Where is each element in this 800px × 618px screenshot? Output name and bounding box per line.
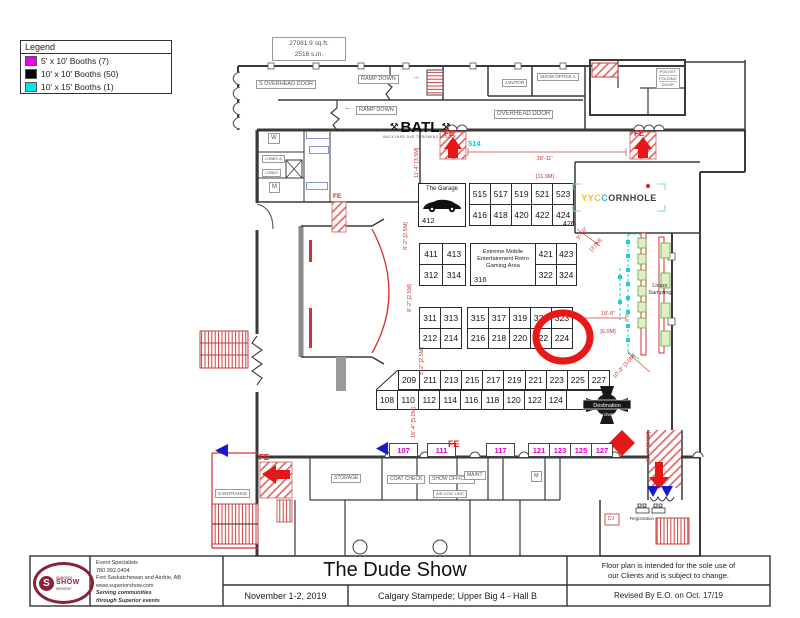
booth-423: 423 bbox=[556, 243, 578, 265]
air-con-label: AIR CON. UNIT bbox=[433, 490, 467, 498]
booth-122: 122 bbox=[524, 390, 546, 410]
legend-item-label: 5' x 10' Booths (7) bbox=[41, 56, 109, 66]
registration-label: Registration bbox=[630, 516, 654, 521]
revision-note: Revised By E.O. on Oct. 17/19 bbox=[567, 585, 770, 606]
booth-116: 116 bbox=[460, 390, 482, 410]
booth-317: 317 bbox=[488, 307, 510, 329]
booth-124: 124 bbox=[545, 390, 567, 410]
booth-row: 216 218 220 222 224 bbox=[467, 328, 573, 350]
booth-217: 217 bbox=[482, 370, 504, 390]
booth-220: 220 bbox=[509, 328, 531, 350]
contact-line: www.superiorshow.com bbox=[96, 583, 181, 591]
booth-row: 312 314 bbox=[419, 264, 466, 286]
booth-223: 223 bbox=[546, 370, 568, 390]
booth-313: 313 bbox=[440, 307, 462, 329]
storage-label: STORAGE bbox=[331, 474, 361, 483]
dimension-feet: 19'-8" bbox=[590, 311, 626, 317]
fire-extinguisher-label: FE bbox=[448, 439, 460, 449]
garage-number: 412 bbox=[422, 216, 435, 225]
booth-218: 218 bbox=[488, 328, 510, 350]
legend-item: 10' x 10' Booths (50) bbox=[21, 67, 171, 80]
booth-108: 108 bbox=[376, 390, 398, 410]
floor-plan-page: Legend 5' x 10' Booths (7) 10' x 10' Boo… bbox=[0, 0, 800, 618]
booth-411: 411 bbox=[419, 243, 443, 265]
pocket-door-line: DOOR bbox=[659, 82, 677, 88]
fire-extinguisher-label: FE bbox=[444, 129, 454, 138]
fire-extinguisher-label: FE bbox=[634, 129, 644, 138]
axe-icon: ⚒ bbox=[390, 120, 399, 135]
booth-323: 323 bbox=[551, 307, 573, 329]
booth-125: 125 bbox=[570, 443, 592, 457]
booth-219: 219 bbox=[503, 370, 525, 390]
small-room-label bbox=[306, 131, 330, 139]
booth-117: 117 bbox=[486, 443, 515, 457]
booth-324: 324 bbox=[556, 264, 578, 286]
booth-315: 315 bbox=[467, 307, 489, 329]
booth-row: 421 423 bbox=[535, 243, 577, 265]
booth-row: 416 418 420 422 424 bbox=[469, 204, 574, 226]
show-date: November 1-2, 2019 bbox=[223, 585, 348, 606]
dimension-16-4: 16'-4" [5.0M] bbox=[411, 407, 417, 438]
contact-line: 780.992.0404 bbox=[96, 568, 181, 576]
disclaimer: Floor plan is intended for the sole use … bbox=[567, 556, 770, 585]
venue: Calgary Stampede; Upper Big 4 - Hall B bbox=[348, 585, 567, 606]
booth-row: 515 517 519 521 523 bbox=[469, 183, 574, 205]
booth-515: 515 bbox=[469, 183, 491, 205]
overhead-door-label: OVERHEAD DOOR bbox=[494, 110, 553, 119]
s-overhead-door-label: S OVERHEAD DOOR bbox=[256, 80, 316, 89]
fire-extinguisher-label: FE bbox=[333, 193, 341, 200]
contact-slogan-line: Serving communities bbox=[96, 590, 181, 598]
booth-311: 311 bbox=[419, 307, 441, 329]
ramp-down-label: RAMP DOWN bbox=[356, 106, 397, 115]
dimension-19-8: 19'-8" [6.0M] bbox=[590, 299, 626, 341]
area-info-box: 27081.9 sq.ft. 2516 s.m. bbox=[272, 37, 346, 61]
lobby-a-label: LOBBY A bbox=[262, 155, 285, 163]
legend-title: Legend bbox=[21, 41, 171, 54]
contact-info: Event Specialists 780.992.0404 Fort Sask… bbox=[96, 560, 181, 605]
booth-225: 225 bbox=[567, 370, 589, 390]
dimension-38-11: 38'-11" [11.9M] bbox=[524, 144, 566, 186]
liquor-sampling-label: Liquor Sampling bbox=[645, 283, 675, 297]
booth-221: 221 bbox=[525, 370, 547, 390]
blue-triangle-icon bbox=[661, 486, 673, 497]
booth-row: 212 214 bbox=[419, 328, 462, 350]
dimension-8-2: 8'-2" [2.5M] bbox=[419, 347, 425, 375]
booth-215: 215 bbox=[461, 370, 483, 390]
contact-line: Fort Saskatchewan and Airdrie, AB bbox=[96, 575, 181, 583]
show-title: The Dude Show bbox=[223, 556, 567, 585]
booth-523: 523 bbox=[552, 183, 574, 205]
booth-121: 121 bbox=[528, 443, 550, 457]
booth-123: 123 bbox=[549, 443, 571, 457]
booth-112: 112 bbox=[418, 390, 440, 410]
booth-312: 312 bbox=[419, 264, 443, 286]
janitor-label: JANITOR bbox=[502, 79, 527, 87]
booth-118: 118 bbox=[481, 390, 503, 410]
booth-514: 514 bbox=[468, 139, 481, 148]
booth-322: 322 bbox=[535, 264, 557, 286]
contact-slogan-line: through Superior events bbox=[96, 598, 181, 606]
corner-cut-line bbox=[376, 370, 398, 390]
contact-line: Event Specialists bbox=[96, 560, 181, 568]
area-sm: 2516 s.m. bbox=[275, 49, 343, 60]
legend: Legend 5' x 10' Booths (7) 10' x 10' Boo… bbox=[20, 40, 172, 94]
gaming-area-line2: Entertainment Retro bbox=[471, 256, 535, 263]
coat-check-label: COAT CHECK bbox=[387, 475, 425, 484]
dimension-11-6: 11'-6" [3.5M] bbox=[646, 432, 652, 462]
right-arrow-icon: → bbox=[412, 72, 420, 81]
booth-224: 224 bbox=[551, 328, 573, 350]
garage-label: The Garage bbox=[419, 186, 465, 192]
booth-227: 227 bbox=[588, 370, 610, 390]
car-icon bbox=[420, 197, 464, 213]
dimension-8-2: 8'-2" [2.5M] bbox=[407, 284, 413, 312]
left-arrow-icon: ← bbox=[344, 103, 352, 112]
gaming-area-booth: Extreme Mobile Entertainment Retro Gamin… bbox=[470, 243, 536, 286]
liquor-label-line1: Liquor bbox=[645, 283, 675, 290]
black-swatch-icon bbox=[25, 69, 37, 79]
dimension-11-4: 11'-4" [3.5M] bbox=[414, 148, 420, 178]
dj-label: DJ bbox=[608, 516, 614, 522]
washroom-m-label: M bbox=[269, 182, 280, 193]
dimension-feet: 38'-11" bbox=[524, 156, 566, 162]
booth-row: 315 317 319 321 323 bbox=[467, 307, 573, 329]
disclaimer-line2: our Clients and is subject to change. bbox=[608, 571, 729, 581]
booth-421: 421 bbox=[535, 243, 557, 265]
booth-127: 127 bbox=[591, 443, 613, 457]
booth-unlabeled bbox=[566, 390, 610, 410]
blue-triangle-icon bbox=[647, 486, 659, 497]
legend-item-label: 10' x 10' Booths (50) bbox=[41, 69, 118, 79]
pocket-door-label: POCKET FOLDING DOOR bbox=[656, 68, 680, 89]
blue-triangle-icon bbox=[215, 444, 228, 457]
booth-209: 209 bbox=[398, 370, 420, 390]
batl-logo-text: BATL bbox=[401, 120, 440, 135]
magenta-swatch-icon bbox=[25, 56, 37, 66]
booth-214: 214 bbox=[440, 328, 462, 350]
dimension-metric: [6.0M] bbox=[590, 329, 626, 335]
washroom-w-label: W bbox=[268, 133, 280, 144]
blue-triangle-icon bbox=[376, 442, 388, 455]
booth-519: 519 bbox=[511, 183, 533, 205]
dimension-feet: 9'-10" bbox=[575, 226, 589, 242]
booth-216: 216 bbox=[467, 328, 489, 350]
disclaimer-line1: Floor plan is intended for the sole use … bbox=[602, 561, 735, 571]
gaming-area-line1: Extreme Mobile bbox=[471, 249, 535, 256]
booth-319: 319 bbox=[509, 307, 531, 329]
fire-extinguisher-label: FE bbox=[259, 453, 269, 462]
garage-booth: The Garage 412 bbox=[418, 183, 466, 227]
liquor-label-line2: Sampling bbox=[645, 290, 675, 297]
yyc-logo-part3: ORNHOLE bbox=[608, 193, 657, 203]
small-room-label bbox=[309, 146, 329, 154]
legend-item-label: 10' x 15' Booths (1) bbox=[41, 82, 114, 92]
superior-logo-glyph: S bbox=[39, 576, 54, 591]
booth-212: 212 bbox=[419, 328, 441, 350]
booth-row: 209 211 213 215 217 219 221 223 225 227 bbox=[398, 370, 610, 390]
booth-222: 222 bbox=[530, 328, 552, 350]
s-entrance-label: S ENTRANCE bbox=[215, 489, 250, 498]
booth-420: 420 bbox=[511, 204, 533, 226]
booth-316: 316 bbox=[474, 275, 487, 284]
dimension-metric: [3.0M] bbox=[589, 238, 603, 254]
booth-114: 114 bbox=[439, 390, 461, 410]
superior-word3: service! bbox=[56, 586, 80, 592]
cyan-swatch-icon bbox=[25, 82, 37, 92]
booth-314: 314 bbox=[442, 264, 466, 286]
yyc-logo-part2: C bbox=[601, 193, 608, 203]
booth-413: 413 bbox=[442, 243, 466, 265]
booth-416: 416 bbox=[469, 204, 491, 226]
show-office-a-label: SHOW OFFICE A bbox=[537, 73, 579, 81]
booth-120: 120 bbox=[503, 390, 525, 410]
ramp-down-label: RAMP DOWN bbox=[358, 75, 399, 84]
maint-label: MAINT bbox=[464, 471, 486, 480]
washroom-m-label: M bbox=[531, 471, 542, 482]
booth-row: 322 324 bbox=[535, 264, 577, 286]
booth-213: 213 bbox=[440, 370, 462, 390]
area-sqft: 27081.9 sq.ft. bbox=[275, 38, 343, 49]
booth-row: 411 413 bbox=[419, 243, 466, 265]
booth-row: 311 313 bbox=[419, 307, 462, 329]
registration-desks bbox=[636, 504, 665, 513]
dimension-8-2: 8'-2" [2.5M] bbox=[403, 222, 409, 250]
yyc-logo-part1: YYC bbox=[581, 193, 601, 203]
superior-show-service-logo: S superior SHOW service! bbox=[33, 562, 94, 604]
legend-item: 10' x 15' Booths (1) bbox=[21, 80, 171, 93]
stage-area bbox=[301, 219, 389, 391]
lobby-label: LOBBY bbox=[262, 169, 281, 177]
booth-422: 422 bbox=[531, 204, 553, 226]
yyc-cornhole-logo: YYC C ORNHOLE bbox=[573, 184, 665, 211]
gaming-area-line3: Gaming Area bbox=[471, 263, 535, 270]
booth-107: 107 bbox=[389, 443, 418, 457]
legend-item: 5' x 10' Booths (7) bbox=[21, 54, 171, 67]
small-room-label bbox=[306, 182, 328, 190]
booth-517: 517 bbox=[490, 183, 512, 205]
booth-418: 418 bbox=[490, 204, 512, 226]
booth-321: 321 bbox=[530, 307, 552, 329]
dimension-metric: [11.9M] bbox=[524, 174, 566, 180]
booth-521: 521 bbox=[531, 183, 553, 205]
